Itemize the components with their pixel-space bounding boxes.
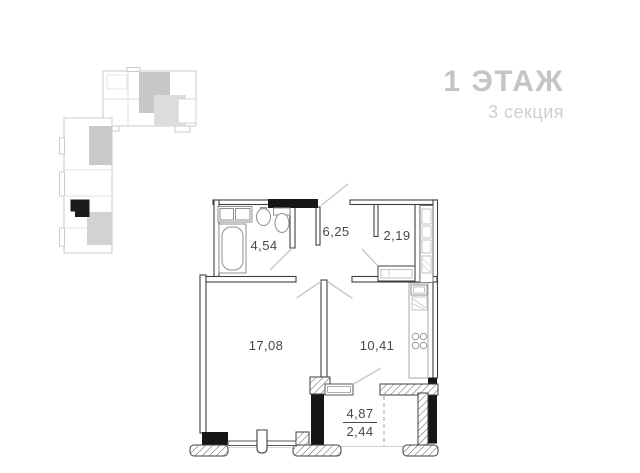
room-area-balcony-reduced: 2,44	[347, 424, 374, 439]
kitchen-door-swing	[328, 282, 353, 299]
wardrobe-door-swing	[362, 249, 378, 266]
wall-hatched	[418, 393, 428, 447]
window	[228, 441, 257, 446]
wall	[415, 205, 420, 283]
floor-plan-page: 1 ЭТАЖ 3 секция	[0, 0, 640, 473]
toilet-icon	[275, 214, 289, 233]
site-core	[87, 212, 112, 245]
room-area-bathroom: 4,54	[251, 238, 278, 253]
site-unit	[178, 99, 196, 123]
balcony-window	[325, 384, 353, 395]
sink-icon	[257, 209, 271, 226]
wall-solid	[311, 394, 324, 446]
site-bump	[60, 228, 65, 246]
plan-canvas: 4,54 6,25 2,19 17,08 10,41 4,87 2,44	[0, 0, 640, 473]
wall	[350, 200, 437, 205]
balcony-door-swing	[353, 368, 381, 385]
site-bump	[127, 68, 140, 72]
slab-hatched	[190, 445, 228, 456]
niche	[378, 266, 415, 281]
slab-hatched	[293, 445, 341, 456]
room-area-balcony: 4,87	[347, 406, 374, 421]
site-bump	[60, 172, 65, 196]
wall-solid	[202, 432, 228, 445]
entrance-door-swing	[321, 184, 348, 206]
site-bump	[60, 138, 65, 154]
wall-hatched	[296, 432, 309, 445]
wall	[290, 204, 295, 248]
site-bump	[175, 126, 190, 132]
room-area-hallway: 6,25	[323, 224, 350, 239]
room-area-wardrobe: 2,19	[384, 228, 411, 243]
wall-hatched	[380, 384, 438, 395]
room-area-kitchen: 10,41	[360, 338, 395, 353]
slab-hatched	[403, 445, 438, 456]
wall-solid-entrance	[268, 199, 318, 208]
room-labels: 4,54 6,25 2,19 17,08 10,41 4,87 2,44	[249, 224, 411, 439]
wall	[316, 207, 320, 245]
site-plan	[60, 68, 197, 254]
site-core	[89, 126, 112, 165]
wall	[374, 205, 378, 237]
wall	[206, 277, 296, 283]
wall	[433, 200, 438, 282]
living-door-swing	[297, 282, 322, 299]
wall	[433, 282, 438, 378]
floor-plan: 4,54 6,25 2,19 17,08 10,41 4,87 2,44	[190, 184, 438, 456]
service-shafts	[378, 206, 433, 283]
room-area-living-room: 17,08	[249, 338, 284, 353]
bathtub-basin-icon	[222, 227, 243, 270]
cabinet-icon	[236, 209, 251, 221]
window	[267, 441, 296, 446]
stove-icon	[412, 333, 427, 349]
wall-exterior-left	[200, 275, 206, 433]
washing-machine-icon	[220, 209, 234, 221]
window-pier	[257, 430, 267, 453]
wall-partition	[321, 280, 327, 377]
wall	[213, 200, 270, 205]
kitchen-fixtures	[409, 283, 428, 378]
